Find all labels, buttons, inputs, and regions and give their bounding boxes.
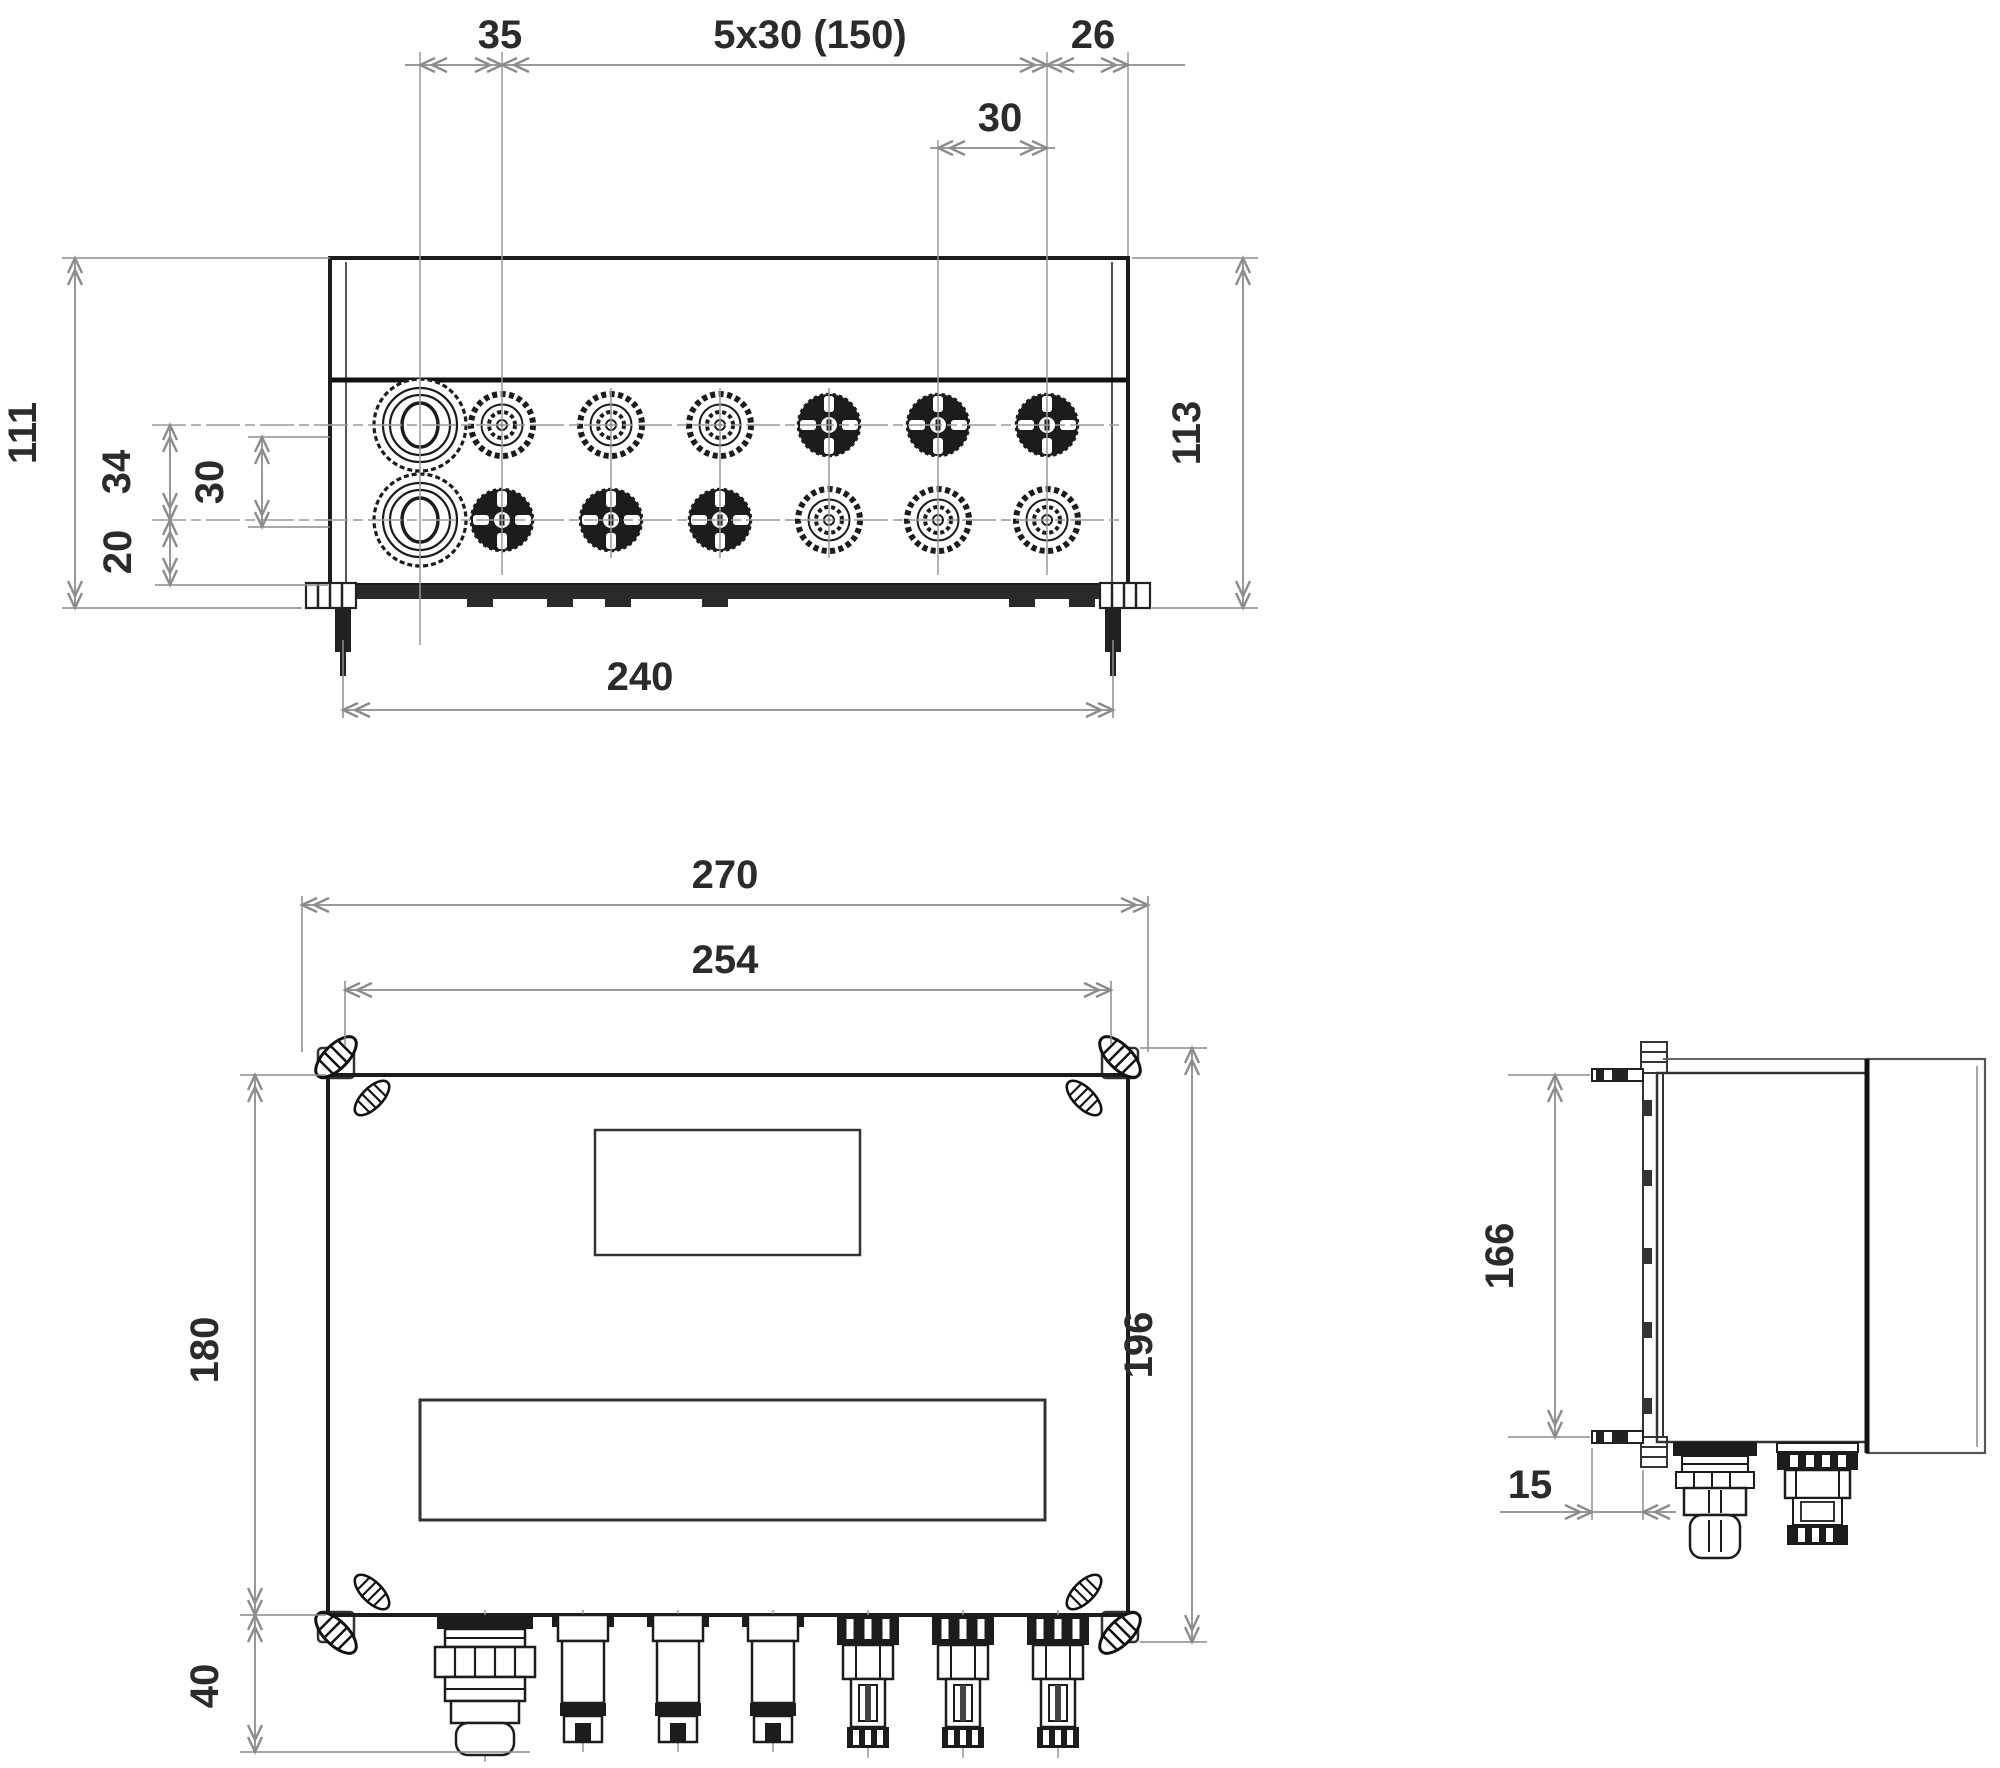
wall-screw [1592,1431,1643,1443]
side-view: 166 15 [1478,1042,1985,1558]
top-view-flange-bar [330,585,1128,599]
dim-height-180: 180 [183,1075,326,1615]
cable-gland [435,1615,535,1755]
dim-row-34: 34 [95,425,177,520]
front-view: 270 254 180 40 [183,853,1207,1762]
dim-height-113: 113 [1132,258,1258,608]
corner-screw-icon [1061,1569,1107,1615]
dim-width-240: 240 [343,640,1113,718]
connector-socket [1027,1615,1089,1748]
dim-label-270: 270 [692,853,759,897]
dim-label-254: 254 [692,938,759,982]
dim-height-166: 166 [1478,1075,1590,1437]
technical-drawing-page: 35 5x30 (150) 26 30 111 34 30 [0,0,2000,1768]
dim-pitch-254: 254 [345,938,1111,1045]
top-view: 35 5x30 (150) 26 30 111 34 30 [1,13,1258,718]
corner-screw-icon [349,1569,395,1615]
top-view-right-bracket [1100,583,1150,676]
dim-label-166: 166 [1478,1223,1522,1290]
dim-label-26: 26 [1071,13,1116,57]
dim-label-240: 240 [607,655,674,699]
dim-row-pitch-30: 30 [188,437,269,527]
connector-plug [647,1615,709,1742]
dim-label-40: 40 [183,1664,227,1709]
corner-screw-icon [1061,1075,1107,1121]
dim-pitch-30: 30 [930,96,1055,155]
dim-label-34: 34 [95,449,139,494]
front-view-label-field [420,1400,1045,1520]
dim-flange-20: 20 [96,520,328,585]
dim-label-111: 111 [1,402,45,464]
side-view-body [1657,1073,1867,1442]
dim-label-5x30-150: 5x30 (150) [713,13,906,57]
enclosure-dimension-drawing: 35 5x30 (150) 26 30 111 34 30 [0,0,2000,1768]
corner-screw-icon [349,1075,395,1121]
dim-label-180: 180 [183,1317,227,1384]
top-view-centerlines [152,52,1128,645]
dim-label-30-left: 30 [188,460,232,505]
side-view-gland [1673,1442,1757,1558]
dim-label-35: 35 [478,13,523,57]
side-view-connector [1777,1443,1858,1545]
dim-label-20: 20 [96,530,140,575]
connector-plug [742,1615,804,1742]
side-view-lid [1867,1059,1985,1453]
dim-label-30-top: 30 [978,96,1023,140]
dim-label-113: 113 [1165,401,1209,466]
top-view-left-bracket [306,583,356,676]
connector-plug [552,1615,614,1742]
front-view-window [595,1130,860,1255]
front-view-enclosure-outline [328,1075,1128,1615]
wall-screw [1592,1069,1643,1081]
dim-label-196: 196 [1117,1312,1161,1379]
connector-socket [837,1615,899,1748]
connector-socket [932,1615,994,1748]
dim-top-chain: 35 5x30 (150) 26 [405,13,1185,72]
dim-height-196: 196 [1117,1048,1207,1642]
front-view-connectors [435,1610,1089,1762]
top-view-flange-feet [467,599,1095,607]
dim-label-15: 15 [1508,1463,1553,1507]
